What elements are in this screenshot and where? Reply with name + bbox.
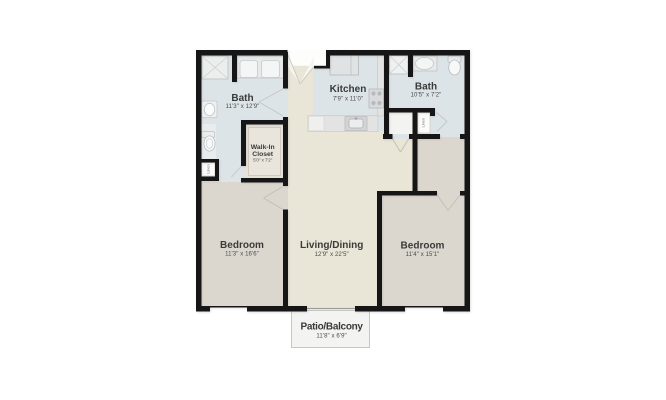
svg-text:10'5" x 7'2": 10'5" x 7'2" — [411, 93, 442, 99]
svg-text:Living/Dining: Living/Dining — [300, 240, 363, 251]
svg-text:11'3" x 16'6": 11'3" x 16'6" — [225, 251, 259, 257]
svg-text:11'4" x 15'1": 11'4" x 15'1" — [406, 252, 440, 258]
svg-text:12'9" x 22'5": 12'9" x 22'5" — [315, 252, 349, 258]
svg-text:Bedroom: Bedroom — [401, 241, 445, 252]
svg-text:Linen: Linen — [422, 118, 426, 127]
svg-text:11'3" x 12'9": 11'3" x 12'9" — [226, 104, 260, 110]
svg-text:Linen: Linen — [207, 164, 211, 173]
svg-text:Walk-In: Walk-In — [251, 144, 275, 151]
svg-text:Patio/Balcony: Patio/Balcony — [300, 322, 363, 333]
svg-text:Kitchen: Kitchen — [330, 84, 367, 95]
svg-text:5'0" x 7'2": 5'0" x 7'2" — [253, 158, 273, 163]
svg-text:7'9" x 11'0": 7'9" x 11'0" — [333, 97, 363, 103]
svg-text:Bedroom: Bedroom — [220, 240, 264, 251]
svg-text:11'8" x 6'9": 11'8" x 6'9" — [316, 334, 346, 340]
svg-text:Bath: Bath — [415, 82, 437, 93]
svg-text:Bath: Bath — [231, 93, 253, 104]
